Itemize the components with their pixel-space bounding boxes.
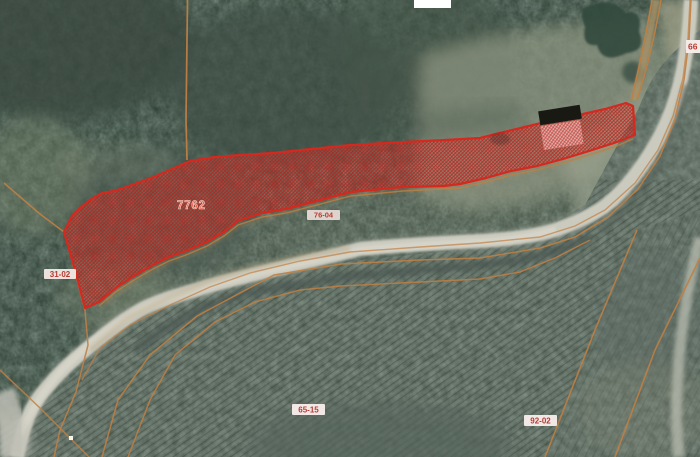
svg-text:66: 66 (688, 42, 698, 52)
svg-text:65-15: 65-15 (298, 406, 319, 415)
svg-text:7762: 7762 (177, 200, 206, 212)
svg-text:76-04: 76-04 (314, 211, 334, 220)
svg-text:92-02: 92-02 (530, 417, 551, 426)
svg-text:31-02: 31-02 (50, 270, 71, 279)
